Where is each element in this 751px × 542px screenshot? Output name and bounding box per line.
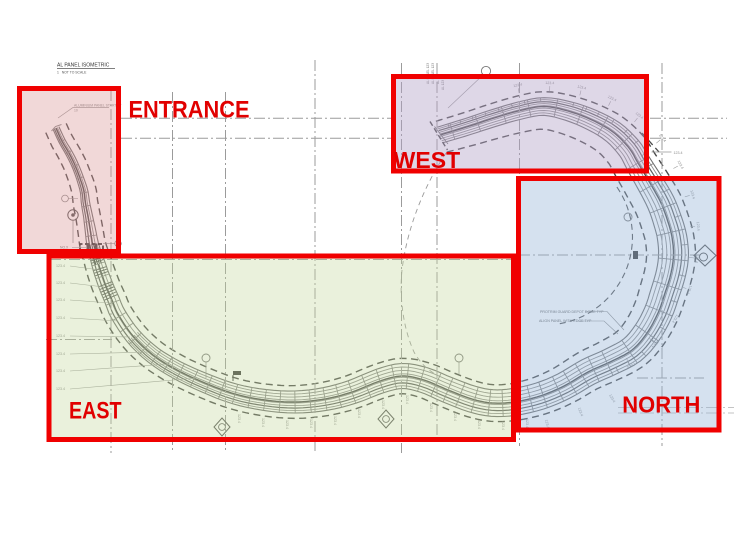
svg-text:123.4: 123.4 — [674, 151, 683, 155]
svg-text:1 NOT TO SCALE: 1 NOT TO SCALE — [57, 71, 87, 75]
svg-text:AL PANEL ISOMETRIC: AL PANEL ISOMETRIC — [57, 63, 110, 69]
svg-text:ENTRANCE: ENTRANCE — [129, 96, 250, 123]
svg-text:NORTH: NORTH — [622, 392, 700, 418]
svg-text:WEST: WEST — [394, 147, 461, 173]
svg-text:EAST: EAST — [69, 398, 122, 425]
